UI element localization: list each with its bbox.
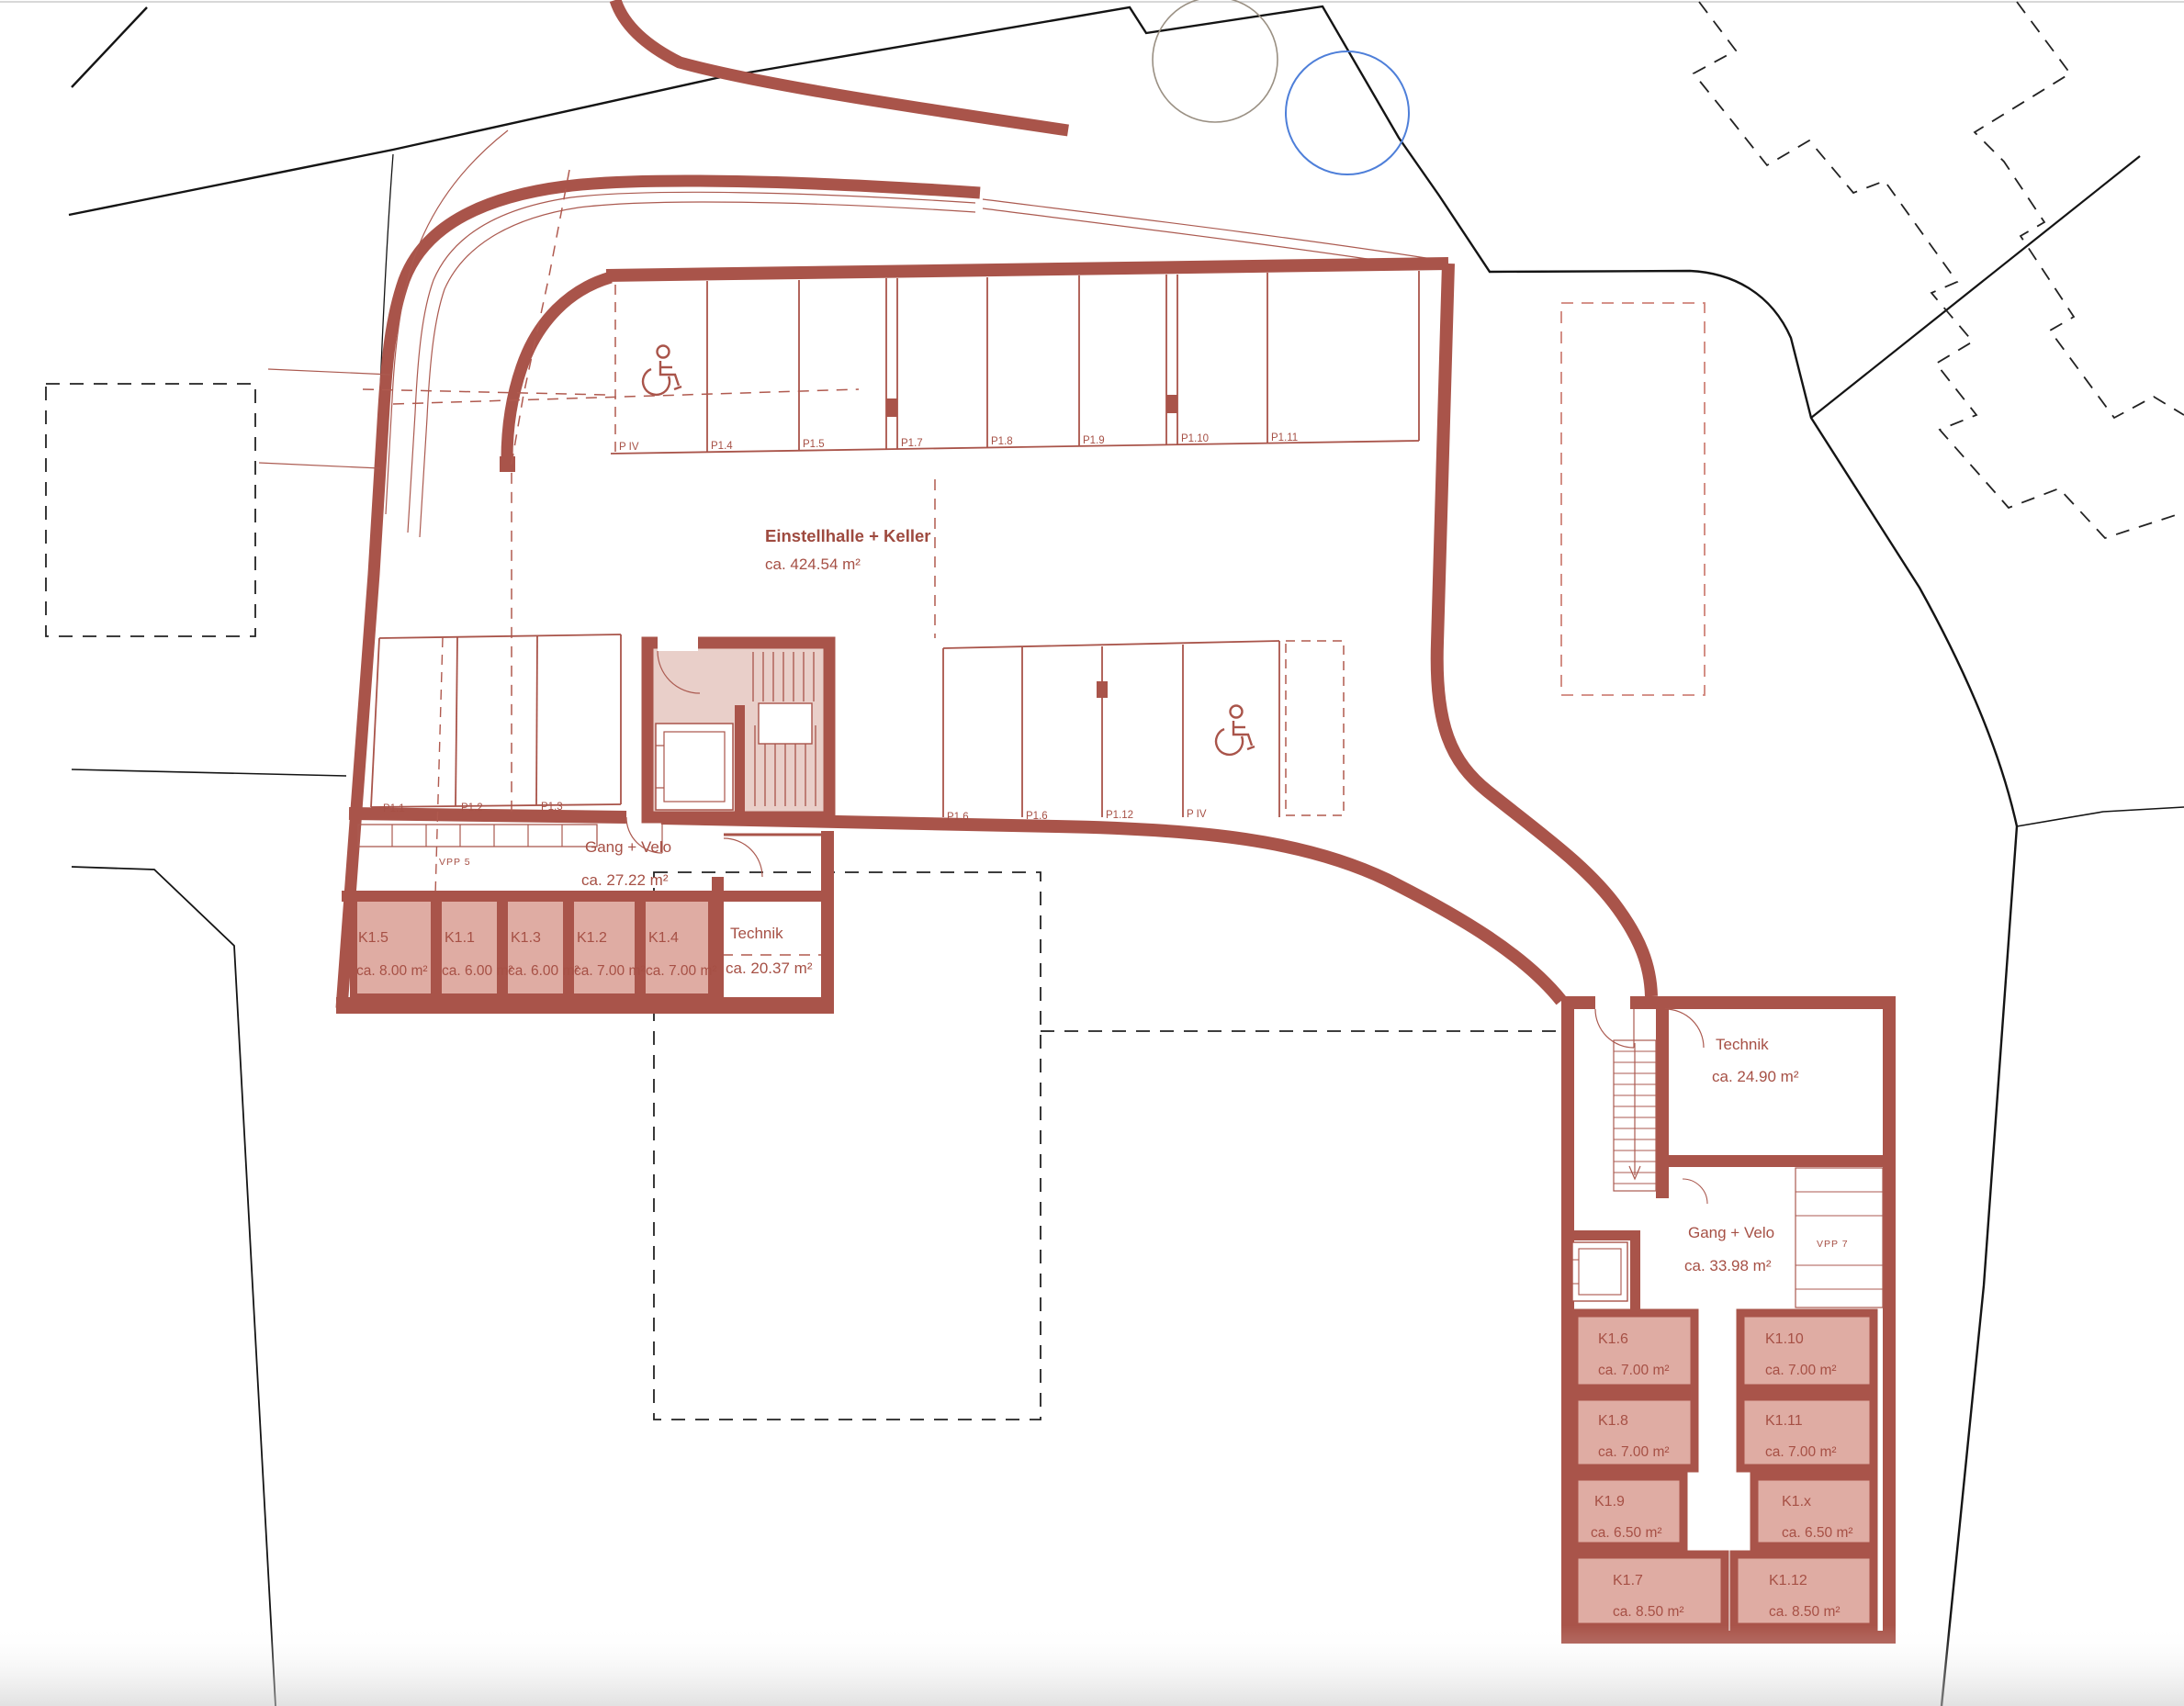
neighbor-zigzag-left	[1694, 2, 2184, 538]
rb-gang-door-arc	[1683, 1179, 1707, 1204]
boundary-right-exit	[2017, 807, 2184, 826]
pillar	[886, 398, 897, 417]
gang-right-name: Gang + Velo	[1688, 1224, 1774, 1241]
technik-door-arc	[724, 838, 762, 877]
hall-title: Einstellhalle + Keller	[765, 526, 930, 545]
gang-left-name: Gang + Velo	[585, 838, 671, 856]
parking-label: P1.8	[991, 436, 1013, 447]
boundary-bottom-left	[72, 867, 276, 1706]
site-plan-drawing: P IV P1.4 P1.5 P1.7 P1.8 P1.9 P1.10 P1.1…	[0, 0, 2184, 1706]
pink-dashed-rect	[1561, 303, 1705, 695]
storage-right-cells: K1.6 ca. 7.00 m² K1.10 ca. 7.00 m² K1.8 …	[1574, 1313, 1874, 1627]
accessible-parking-icon-top	[643, 346, 681, 395]
pillar	[431, 924, 442, 948]
gang-left-area: ca. 27.22 m²	[581, 871, 669, 889]
storage-left-cells: K1.5 ca. 8.00 m² K1.1 ca. 6.00 m² K1.3 c…	[354, 898, 717, 997]
technik-left-name: Technik	[730, 925, 783, 942]
rb-technik-bottom-wall	[1669, 1155, 1883, 1167]
parking-label: P1.4	[711, 441, 733, 452]
parking-label: P1.6	[1026, 811, 1048, 822]
ramp-hairline-outer	[386, 130, 508, 514]
storage-id: K1.7	[1613, 1573, 1643, 1588]
block-east-wall	[821, 831, 834, 1014]
dashed-parking-spot	[1286, 641, 1344, 815]
parking-label: P IV	[1187, 809, 1207, 820]
tree-circle	[1153, 0, 1278, 122]
storage-area: ca. 7.00 m²	[1598, 1444, 1670, 1460]
rb-elevator	[1572, 1242, 1627, 1301]
garage-right-wall-driveway-outer	[1437, 264, 1651, 996]
parking-label: P1.11	[1271, 432, 1298, 443]
rb-technik-door-arc	[1665, 1009, 1704, 1048]
stair-void	[759, 703, 812, 744]
storage-id: K1.4	[648, 930, 679, 946]
storage-id: K1.x	[1782, 1494, 1811, 1510]
left-lower-block: VPP 5 Gang + Velo ca. 27.22 m² Technik c…	[336, 825, 834, 1014]
right-building: Technik ca. 24.90 m² VPP 7 Gang + Velo c…	[1561, 996, 1896, 1644]
parking-label: P1.12	[1106, 810, 1133, 821]
storage-cell	[438, 898, 501, 997]
technik-left-area: ca. 20.37 m²	[726, 960, 813, 977]
vpp7-stalls	[1796, 1168, 1883, 1308]
rb-top-wall-b	[1630, 996, 1896, 1009]
storage-id: K1.1	[445, 930, 475, 946]
ramp-curb-1	[983, 199, 1444, 261]
storage-cell	[504, 898, 567, 997]
storage-area: ca. 7.00 m²	[574, 963, 646, 979]
rb-elevator-wall-right	[1630, 1230, 1640, 1313]
blue-circle	[1286, 51, 1409, 174]
storage-id: K1.2	[577, 930, 607, 946]
parking-label: P1.10	[1181, 433, 1209, 444]
vpp5-label: VPP 5	[439, 857, 471, 868]
rb-elevator-wall-top	[1561, 1230, 1640, 1240]
neighbor-zigzag-right	[1975, 2, 2184, 418]
pillar	[1097, 681, 1108, 698]
storage-id: K1.5	[358, 930, 388, 946]
ramp-lane-line-1	[408, 192, 975, 533]
rb-stair-wall	[1656, 1009, 1669, 1198]
storage-area: ca. 8.50 m²	[1613, 1604, 1684, 1620]
parking-dividers-top	[707, 271, 1419, 452]
bottom-shadow	[0, 1625, 2184, 1706]
storage-cell	[570, 898, 638, 997]
elevator	[656, 724, 733, 810]
parking-label: P IV	[619, 442, 639, 453]
boundary-left-horizontal	[72, 769, 346, 776]
rb-stair-arrow-down	[1629, 1043, 1640, 1179]
garage-walls	[349, 264, 1651, 1001]
garage-top-wall	[606, 264, 1448, 275]
vpp5-strip	[358, 825, 597, 847]
gang-right-area: ca. 33.98 m²	[1684, 1257, 1772, 1274]
storage-cell	[642, 898, 712, 997]
parking-row-mid-right: P1.6 P1.6 P1.12 P IV	[943, 641, 1344, 823]
storage-area: ca. 7.00 m²	[1598, 1363, 1670, 1378]
storage-area: ca. 6.00 m²	[508, 963, 580, 979]
storage-area: ca. 7.00 m²	[646, 963, 717, 979]
pillar	[635, 924, 646, 948]
parking-label: P1.3	[541, 802, 563, 813]
storage-area: ca. 8.00 m²	[356, 963, 428, 979]
storage-id: K1.6	[1598, 1331, 1628, 1347]
storage-area: ca. 7.00 m²	[1765, 1444, 1837, 1460]
ramp-joint-2	[259, 463, 380, 468]
storage-area: ca. 6.50 m²	[1782, 1525, 1853, 1541]
rb-entry-door-arc	[1595, 1009, 1634, 1048]
vpp7-label: VPP 7	[1817, 1239, 1849, 1250]
pillar	[497, 924, 508, 948]
garage-topleft-curve	[507, 277, 611, 459]
floorplan-page: P IV P1.4 P1.5 P1.7 P1.8 P1.9 P1.10 P1.1…	[0, 0, 2184, 1706]
rb-right-wall	[1883, 996, 1896, 1644]
parking-label: P1.9	[1083, 435, 1105, 446]
storage-id: K1.8	[1598, 1413, 1628, 1429]
storage-id: K1.11	[1765, 1413, 1803, 1429]
accessible-parking-icon-mid	[1216, 706, 1255, 755]
parking-label: P1.7	[901, 438, 923, 449]
stair-core-left	[647, 634, 829, 817]
boundary-top-left-diagonal	[72, 7, 147, 87]
storage-id: K1.9	[1594, 1494, 1625, 1510]
storage-id: K1.3	[511, 930, 541, 946]
parking-label: P1.1	[383, 803, 405, 814]
technik-right-area: ca. 24.90 m²	[1712, 1068, 1799, 1085]
storage-area: ca. 6.50 m²	[1591, 1525, 1662, 1541]
parking-row-top: P IV P1.4 P1.5 P1.7 P1.8 P1.9 P1.10 P1.1…	[611, 271, 1419, 454]
hall-area: ca. 424.54 m²	[765, 556, 861, 573]
neighbor-rect-left	[46, 384, 255, 636]
ramp-outer-wall	[615, 0, 1068, 130]
parking-label: P1.2	[461, 802, 483, 814]
core-door-gap	[658, 634, 698, 651]
storage-area: ca. 8.50 m²	[1769, 1604, 1841, 1620]
storage-id: K1.12	[1769, 1573, 1807, 1588]
parking-label: P1.6	[947, 812, 969, 823]
core-inner-wall-v	[735, 705, 745, 812]
storage-id: K1.10	[1765, 1331, 1804, 1347]
pillar	[563, 924, 574, 948]
parking-row-mid-left: P1.1 P1.2 P1.3	[371, 634, 621, 895]
ramp-joint-1	[268, 369, 390, 375]
technik-right-name: Technik	[1716, 1036, 1769, 1053]
vpp5-dividers	[392, 825, 562, 847]
storage-area: ca. 7.00 m²	[1765, 1363, 1837, 1378]
pillar	[1166, 395, 1177, 413]
storage-cell	[354, 898, 434, 997]
boundary-straight	[1811, 156, 2140, 418]
boundary-main	[69, 6, 2017, 1706]
ramp	[259, 0, 1444, 1008]
parking-label: P1.5	[803, 439, 825, 450]
storage-area: ca. 6.00 m²	[442, 963, 513, 979]
ramp-lane-line-2	[420, 202, 975, 537]
